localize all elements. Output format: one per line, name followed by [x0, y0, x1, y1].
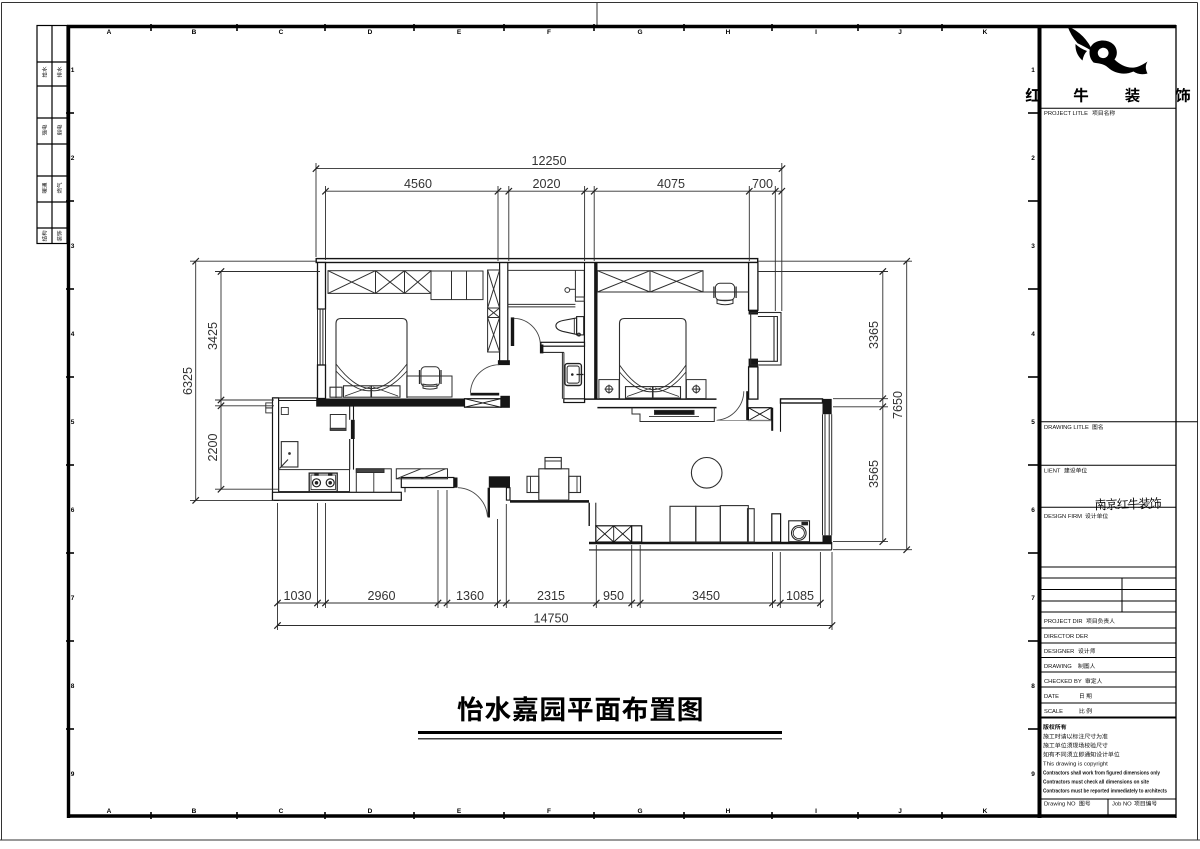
- svg-text:6: 6: [1031, 507, 1035, 514]
- svg-text:Contractors must be reported i: Contractors must be reported immediately…: [1043, 789, 1168, 795]
- svg-text:7: 7: [71, 595, 75, 602]
- svg-text:8: 8: [1031, 683, 1035, 690]
- svg-text:I: I: [815, 808, 817, 815]
- svg-text:6325: 6325: [181, 367, 195, 395]
- svg-text:700: 700: [752, 177, 773, 191]
- svg-text:6: 6: [71, 507, 75, 514]
- svg-text:Job NO: Job NO: [1112, 802, 1132, 808]
- svg-text:D: D: [368, 808, 373, 815]
- svg-text:B: B: [192, 808, 197, 815]
- svg-text:3: 3: [1031, 243, 1035, 250]
- svg-text:F: F: [547, 808, 551, 815]
- svg-text:B: B: [192, 29, 197, 36]
- svg-text:E: E: [457, 808, 462, 815]
- svg-text:14750: 14750: [533, 612, 568, 626]
- svg-text:2: 2: [1031, 155, 1035, 162]
- svg-text:3565: 3565: [867, 460, 881, 488]
- svg-text:H: H: [726, 808, 731, 815]
- svg-text:4: 4: [1031, 331, 1035, 338]
- svg-text:12250: 12250: [531, 154, 566, 168]
- svg-text:3425: 3425: [206, 322, 220, 350]
- svg-text:D: D: [368, 29, 373, 36]
- svg-text:1030: 1030: [283, 589, 311, 603]
- svg-text:DRAWING LITLE: DRAWING LITLE: [1044, 425, 1089, 431]
- svg-text:Drawing NO: Drawing NO: [1044, 802, 1076, 808]
- svg-text:3: 3: [71, 243, 75, 250]
- svg-text:7: 7: [1031, 595, 1035, 602]
- svg-text:DESIGN FIRM: DESIGN FIRM: [1044, 514, 1082, 520]
- svg-text:7650: 7650: [891, 391, 905, 419]
- svg-text:C: C: [279, 808, 284, 815]
- svg-text:DATE: DATE: [1044, 694, 1059, 700]
- svg-text:5: 5: [1031, 419, 1035, 426]
- svg-text:1360: 1360: [456, 589, 484, 603]
- svg-text:F: F: [547, 29, 551, 36]
- svg-text:A: A: [107, 29, 112, 36]
- svg-text:8: 8: [71, 683, 75, 690]
- svg-text:I: I: [815, 29, 817, 36]
- svg-text:1085: 1085: [786, 589, 814, 603]
- svg-text:Contractors must check all dim: Contractors must check all dimensions on…: [1043, 780, 1150, 786]
- svg-text:2960: 2960: [367, 589, 395, 603]
- svg-text:H: H: [726, 29, 731, 36]
- svg-text:950: 950: [603, 589, 624, 603]
- svg-text:G: G: [637, 808, 642, 815]
- svg-text:PROJECT DIR: PROJECT DIR: [1044, 619, 1083, 625]
- svg-text:9: 9: [1031, 771, 1035, 778]
- svg-text:4075: 4075: [657, 177, 685, 191]
- svg-text:J: J: [898, 29, 902, 36]
- svg-text:SCALE: SCALE: [1044, 709, 1063, 715]
- svg-text:Contractors shall work from fi: Contractors shall work from figured dime…: [1043, 771, 1161, 777]
- svg-text:2315: 2315: [537, 589, 565, 603]
- svg-text:1: 1: [1031, 67, 1035, 74]
- svg-text:G: G: [637, 29, 642, 36]
- svg-text:K: K: [983, 808, 988, 815]
- svg-text:9: 9: [71, 771, 75, 778]
- svg-text:DESIGNER: DESIGNER: [1044, 649, 1074, 655]
- svg-text:J: J: [898, 808, 902, 815]
- svg-text:E: E: [457, 29, 462, 36]
- svg-text:PROJECT LITLE: PROJECT LITLE: [1044, 111, 1088, 117]
- svg-text:DRAWING: DRAWING: [1044, 664, 1072, 670]
- svg-text:2: 2: [71, 155, 75, 162]
- svg-text:C: C: [279, 29, 284, 36]
- svg-text:2200: 2200: [206, 433, 220, 461]
- svg-text:DIRECTOR DER: DIRECTOR DER: [1044, 634, 1088, 640]
- svg-text:3365: 3365: [867, 321, 881, 349]
- svg-text:4: 4: [71, 331, 75, 338]
- svg-text:LIENT: LIENT: [1044, 469, 1061, 475]
- svg-text:A: A: [107, 808, 112, 815]
- svg-text:K: K: [983, 29, 988, 36]
- svg-text:4560: 4560: [404, 177, 432, 191]
- svg-text:CHECKED BY: CHECKED BY: [1044, 679, 1082, 685]
- svg-text:3450: 3450: [692, 589, 720, 603]
- svg-text:5: 5: [71, 419, 75, 426]
- svg-text:2020: 2020: [532, 177, 560, 191]
- svg-text:1: 1: [71, 67, 75, 74]
- svg-text:This drawing is copyright: This drawing is copyright: [1043, 762, 1108, 768]
